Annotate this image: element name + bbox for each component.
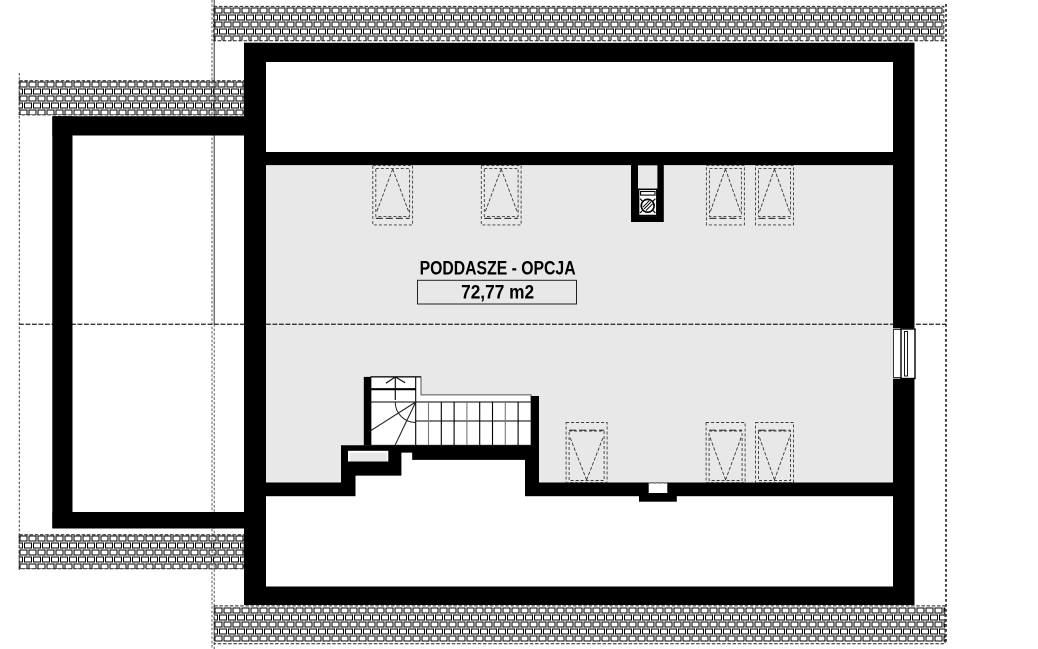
svg-text:72,77 m2: 72,77 m2 [461,283,534,304]
svg-text:PODDASZE - OPCJA: PODDASZE - OPCJA [420,259,576,280]
